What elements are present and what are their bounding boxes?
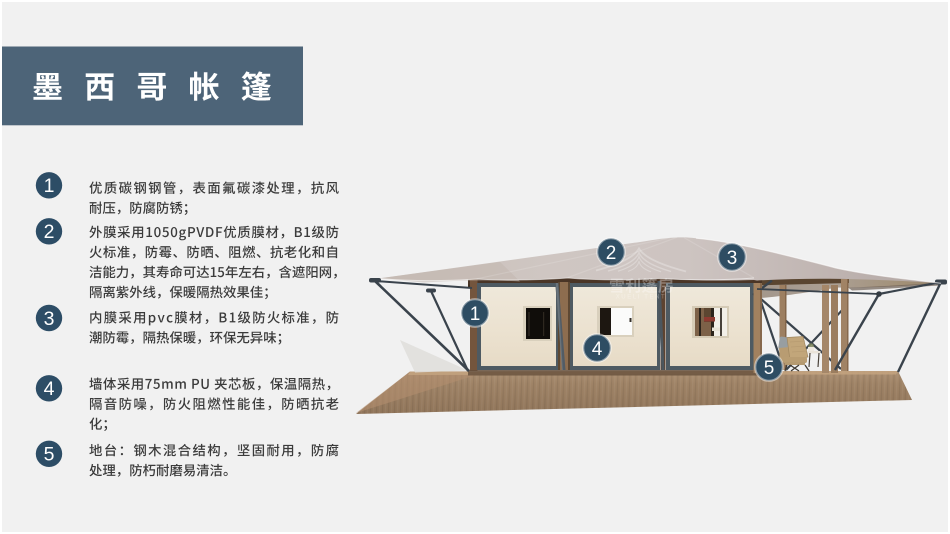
svg-text:4: 4: [592, 339, 603, 360]
svg-text:5: 5: [44, 444, 55, 466]
svg-text:2: 2: [44, 221, 55, 243]
svg-text:4: 4: [44, 378, 55, 400]
svg-text:2: 2: [606, 243, 617, 264]
svg-text:5: 5: [764, 358, 775, 379]
svg-text:1: 1: [470, 304, 481, 325]
svg-text:3: 3: [44, 308, 55, 330]
svg-text:3: 3: [727, 248, 738, 269]
svg-text:1: 1: [44, 175, 55, 197]
svg-text:XUELI TENT: XUELI TENT: [616, 295, 667, 301]
